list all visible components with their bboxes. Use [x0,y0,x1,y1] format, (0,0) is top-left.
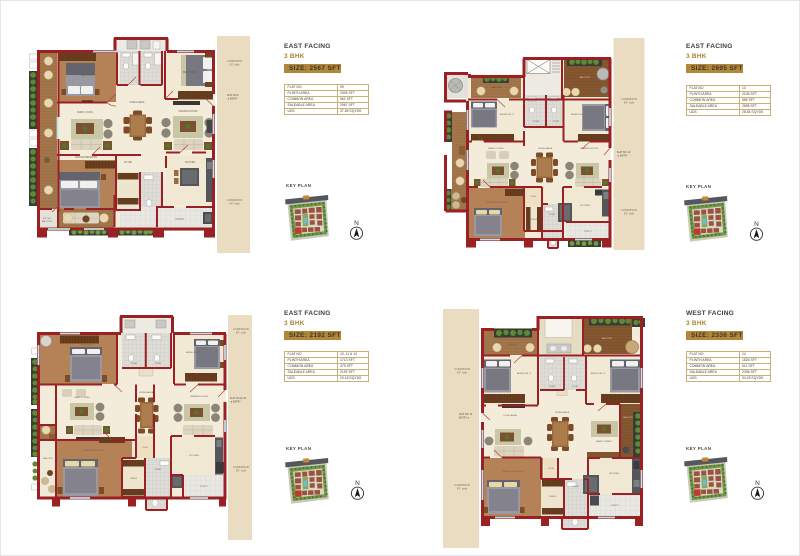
svg-text:DINING AREA: DINING AREA [130,101,145,104]
svg-text:8'0" wide: 8'0" wide [236,331,247,335]
svg-text:8'0" wide: 8'0" wide [229,202,240,206]
svg-text:BEDROOM #2: BEDROOM #2 [186,352,201,354]
svg-text:DRAWING ROOM: DRAWING ROOM [179,110,198,113]
svg-text:BEDROOM 3: BEDROOM 3 [183,72,198,74]
svg-text:CORRIDOR: CORRIDOR [227,198,243,202]
svg-text:TOILET: TOILET [573,486,581,488]
svg-text:SIT OUT: SIT OUT [43,218,52,220]
svg-text:UTILITY: UTILITY [176,218,185,221]
svg-text:8'0" wide: 8'0" wide [457,371,468,375]
svg-text:BALCONY: BALCONY [623,416,633,419]
svg-text:8'0" wide: 8'0" wide [457,487,468,491]
svg-text:FLAT NO. 14: FLAT NO. 14 [459,413,473,416]
svg-text:DRESS: DRESS [530,219,538,221]
svg-text:BEDROOM 2: BEDROOM 2 [81,75,96,77]
svg-text:BALCONY: BALCONY [43,457,53,460]
svg-text:PUJA: PUJA [530,195,536,198]
svg-text:BALCONY: BALCONY [492,86,503,89]
svg-text:MASTER BEDROOM: MASTER BEDROOM [83,449,104,452]
svg-text:FAMILY LIVING: FAMILY LIVING [74,396,90,399]
svg-text:BEDROOM #2: BEDROOM #2 [591,373,606,375]
svg-text:DRAWING ROOM: DRAWING ROOM [190,395,208,398]
svg-text:DINING AREA: DINING AREA [139,391,154,394]
svg-text:CORRIDOR: CORRIDOR [454,483,470,487]
svg-text:UTILITY: UTILITY [584,231,593,233]
svg-text:DINING AREA: DINING AREA [538,147,553,150]
svg-text:N: N [355,480,360,487]
svg-text:LIVING AREA: LIVING AREA [503,414,517,417]
svg-text:FAMILY DINING: FAMILY DINING [596,440,612,443]
svg-text:KITCHEN: KITCHEN [189,455,199,457]
svg-text:BALCONY: BALCONY [602,337,613,340]
svg-text:UTILITY: UTILITY [200,486,209,488]
svg-text:CORRIDOR: CORRIDOR [233,327,249,331]
svg-text:◄ ENTRY: ◄ ENTRY [617,155,628,158]
svg-text:CORRIDOR: CORRIDOR [621,97,637,101]
svg-text:TOILET: TOILET [549,386,557,388]
svg-text:KITCHEN: KITCHEN [580,205,590,207]
svg-text:MASTER BEDROOM: MASTER BEDROOM [502,470,523,473]
svg-text:DINING AREA: DINING AREA [555,411,570,414]
svg-text:8'0" wide: 8'0" wide [236,469,247,473]
svg-text:BALCONY: BALCONY [42,220,53,223]
svg-text:ENTRY ►: ENTRY ► [459,417,470,420]
svg-text:UTILITY: UTILITY [611,505,620,507]
svg-text:FAMILY LIVING: FAMILY LIVING [77,111,93,114]
svg-text:TOILET: TOILET [533,121,541,123]
svg-text:TOILET: TOILET [155,469,163,471]
svg-text:FLAT NO.10-12: FLAT NO.10-12 [230,397,247,400]
svg-text:CORRIDOR: CORRIDOR [233,465,249,469]
svg-text:BEDROOM #1: BEDROOM #1 [500,114,515,116]
svg-text:BEDROOM #2: BEDROOM #2 [571,114,586,116]
svg-text:DRESS: DRESS [130,478,138,480]
svg-text:CORRIDOR: CORRIDOR [621,208,637,212]
svg-text:N: N [754,221,759,228]
svg-text:BEDROOM #1: BEDROOM #1 [517,373,532,375]
svg-text:TOILET: TOILET [131,363,139,365]
svg-text:SIT OUT: SIT OUT [509,344,518,346]
svg-text:CORRIDOR: CORRIDOR [227,59,243,63]
svg-text:MASTER BEDROOM: MASTER BEDROOM [486,201,507,204]
svg-text:BALCONY: BALCONY [580,76,591,79]
svg-text:◄ ENTRY: ◄ ENTRY [230,401,241,404]
svg-text:N: N [755,480,760,487]
svg-text:FAMILY LIVING: FAMILY LIVING [488,147,504,150]
svg-text:KITCHEN: KITCHEN [609,473,619,475]
svg-text:FOYER: FOYER [124,162,132,164]
svg-text:N: N [354,220,359,227]
svg-text:TOILET: TOILET [549,214,557,216]
svg-text:FLAT NO. 10: FLAT NO. 10 [617,151,631,154]
svg-text:◄ ENTRY: ◄ ENTRY [227,98,238,101]
svg-text:8'0" wide: 8'0" wide [229,63,240,67]
svg-text:KITCHEN: KITCHEN [185,162,195,164]
svg-text:CORRIDOR: CORRIDOR [454,367,470,371]
svg-text:TOILET: TOILET [572,386,580,388]
svg-text:PUJA: PUJA [548,467,554,470]
svg-text:BEDROOM #1: BEDROOM #1 [81,345,96,347]
svg-text:PUJA: PUJA [142,446,148,449]
svg-text:8'0" wide: 8'0" wide [624,101,635,105]
svg-text:8'0" wide: 8'0" wide [624,212,635,216]
svg-text:FLAT NO.9: FLAT NO.9 [227,94,239,97]
svg-text:TOILET: TOILET [553,121,561,123]
svg-text:DRESS: DRESS [549,496,557,498]
svg-text:TOILET: TOILET [155,363,163,365]
svg-text:MASTER BEDROOM: MASTER BEDROOM [75,156,97,159]
